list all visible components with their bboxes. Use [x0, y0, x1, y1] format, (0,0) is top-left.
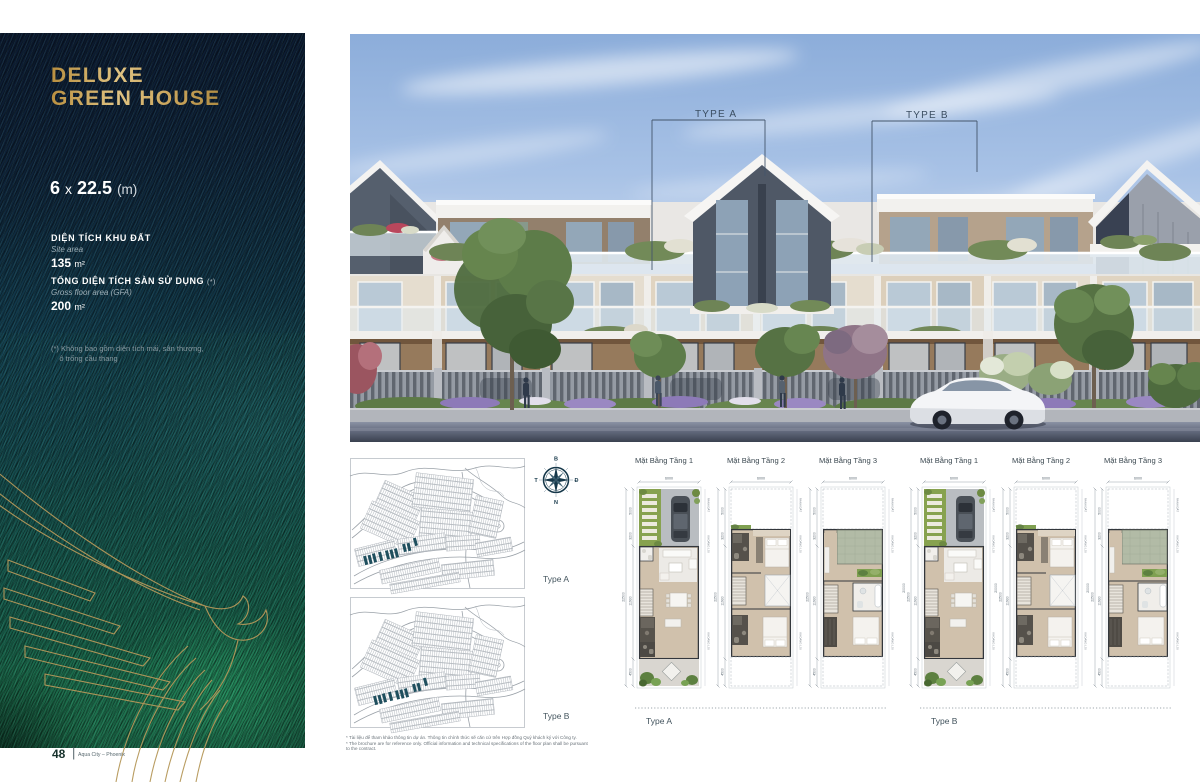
svg-text:TYPE B: TYPE B: [906, 110, 949, 121]
svg-text:Type B: Type B: [931, 716, 958, 726]
svg-text:20000: 20000: [902, 583, 906, 593]
svg-text:TYPE A: TYPE A: [695, 109, 737, 120]
svg-text:Đ: Đ: [575, 478, 579, 484]
svg-text:B: B: [554, 457, 558, 463]
svg-text:N: N: [554, 500, 558, 506]
svg-text:T: T: [534, 478, 538, 484]
svg-text:Type A: Type A: [646, 716, 672, 726]
svg-text:20000: 20000: [994, 583, 998, 593]
svg-text:20000: 20000: [1086, 583, 1090, 593]
